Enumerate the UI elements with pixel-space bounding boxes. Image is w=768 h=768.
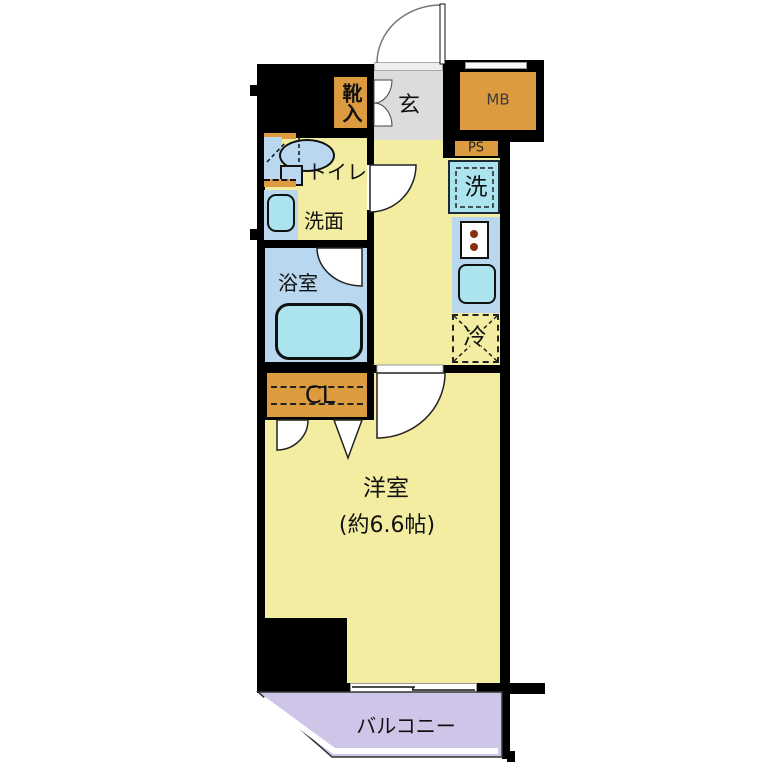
western-room-label: 洋室 <box>363 478 409 501</box>
meter-box-label: MB <box>486 93 509 108</box>
wall-balcony-right <box>502 693 510 759</box>
wall-bottom-left-mass <box>257 618 347 692</box>
toilet-label: トイレ <box>307 162 367 182</box>
western-room-size-label: (約6.6帖) <box>339 515 435 537</box>
bathroom-label: 浴室 <box>278 273 318 293</box>
toilet-step-strip <box>264 179 296 187</box>
stove <box>460 221 489 259</box>
pipe-space-label: PS <box>468 142 484 155</box>
entry-door-arc <box>377 5 441 63</box>
genkan-label: 玄 <box>398 95 420 117</box>
wall-hall-room-right <box>443 365 500 373</box>
closet-label: CL <box>305 383 335 407</box>
entry-door-leaf <box>440 4 445 64</box>
balcony-label: バルコニー <box>356 716 456 736</box>
washbasin-sink <box>267 194 295 232</box>
kitchen-sink <box>458 264 496 304</box>
balcony-window <box>350 683 477 693</box>
wall-balcony-right-tick <box>507 751 515 762</box>
refrigerator-label: 冷 <box>464 327 487 350</box>
mb-louver-window <box>465 62 527 69</box>
entry-door-threshold <box>374 62 443 71</box>
wall-window-right <box>477 683 545 694</box>
floorplan-canvas: 靴入 玄 MB PS 洗 トイレ 洗面 浴室 冷 CL 洋室 (約6.6帖) バ… <box>0 0 768 768</box>
wall-washroom-bathroom <box>257 240 374 248</box>
wall-hall-toilet-upper <box>367 138 374 165</box>
washing-machine-label: 洗 <box>465 177 488 200</box>
bathtub <box>275 303 363 360</box>
wall-hall-room-left <box>374 365 378 373</box>
wall-right-main <box>500 130 510 693</box>
wall-left-tick-lower <box>250 229 258 240</box>
wall-hall-toilet-lower <box>367 210 374 370</box>
wall-left-tick-upper <box>250 85 258 96</box>
washroom-label: 洗面 <box>304 211 344 231</box>
shoe-cabinet-label: 靴入 <box>341 83 361 123</box>
